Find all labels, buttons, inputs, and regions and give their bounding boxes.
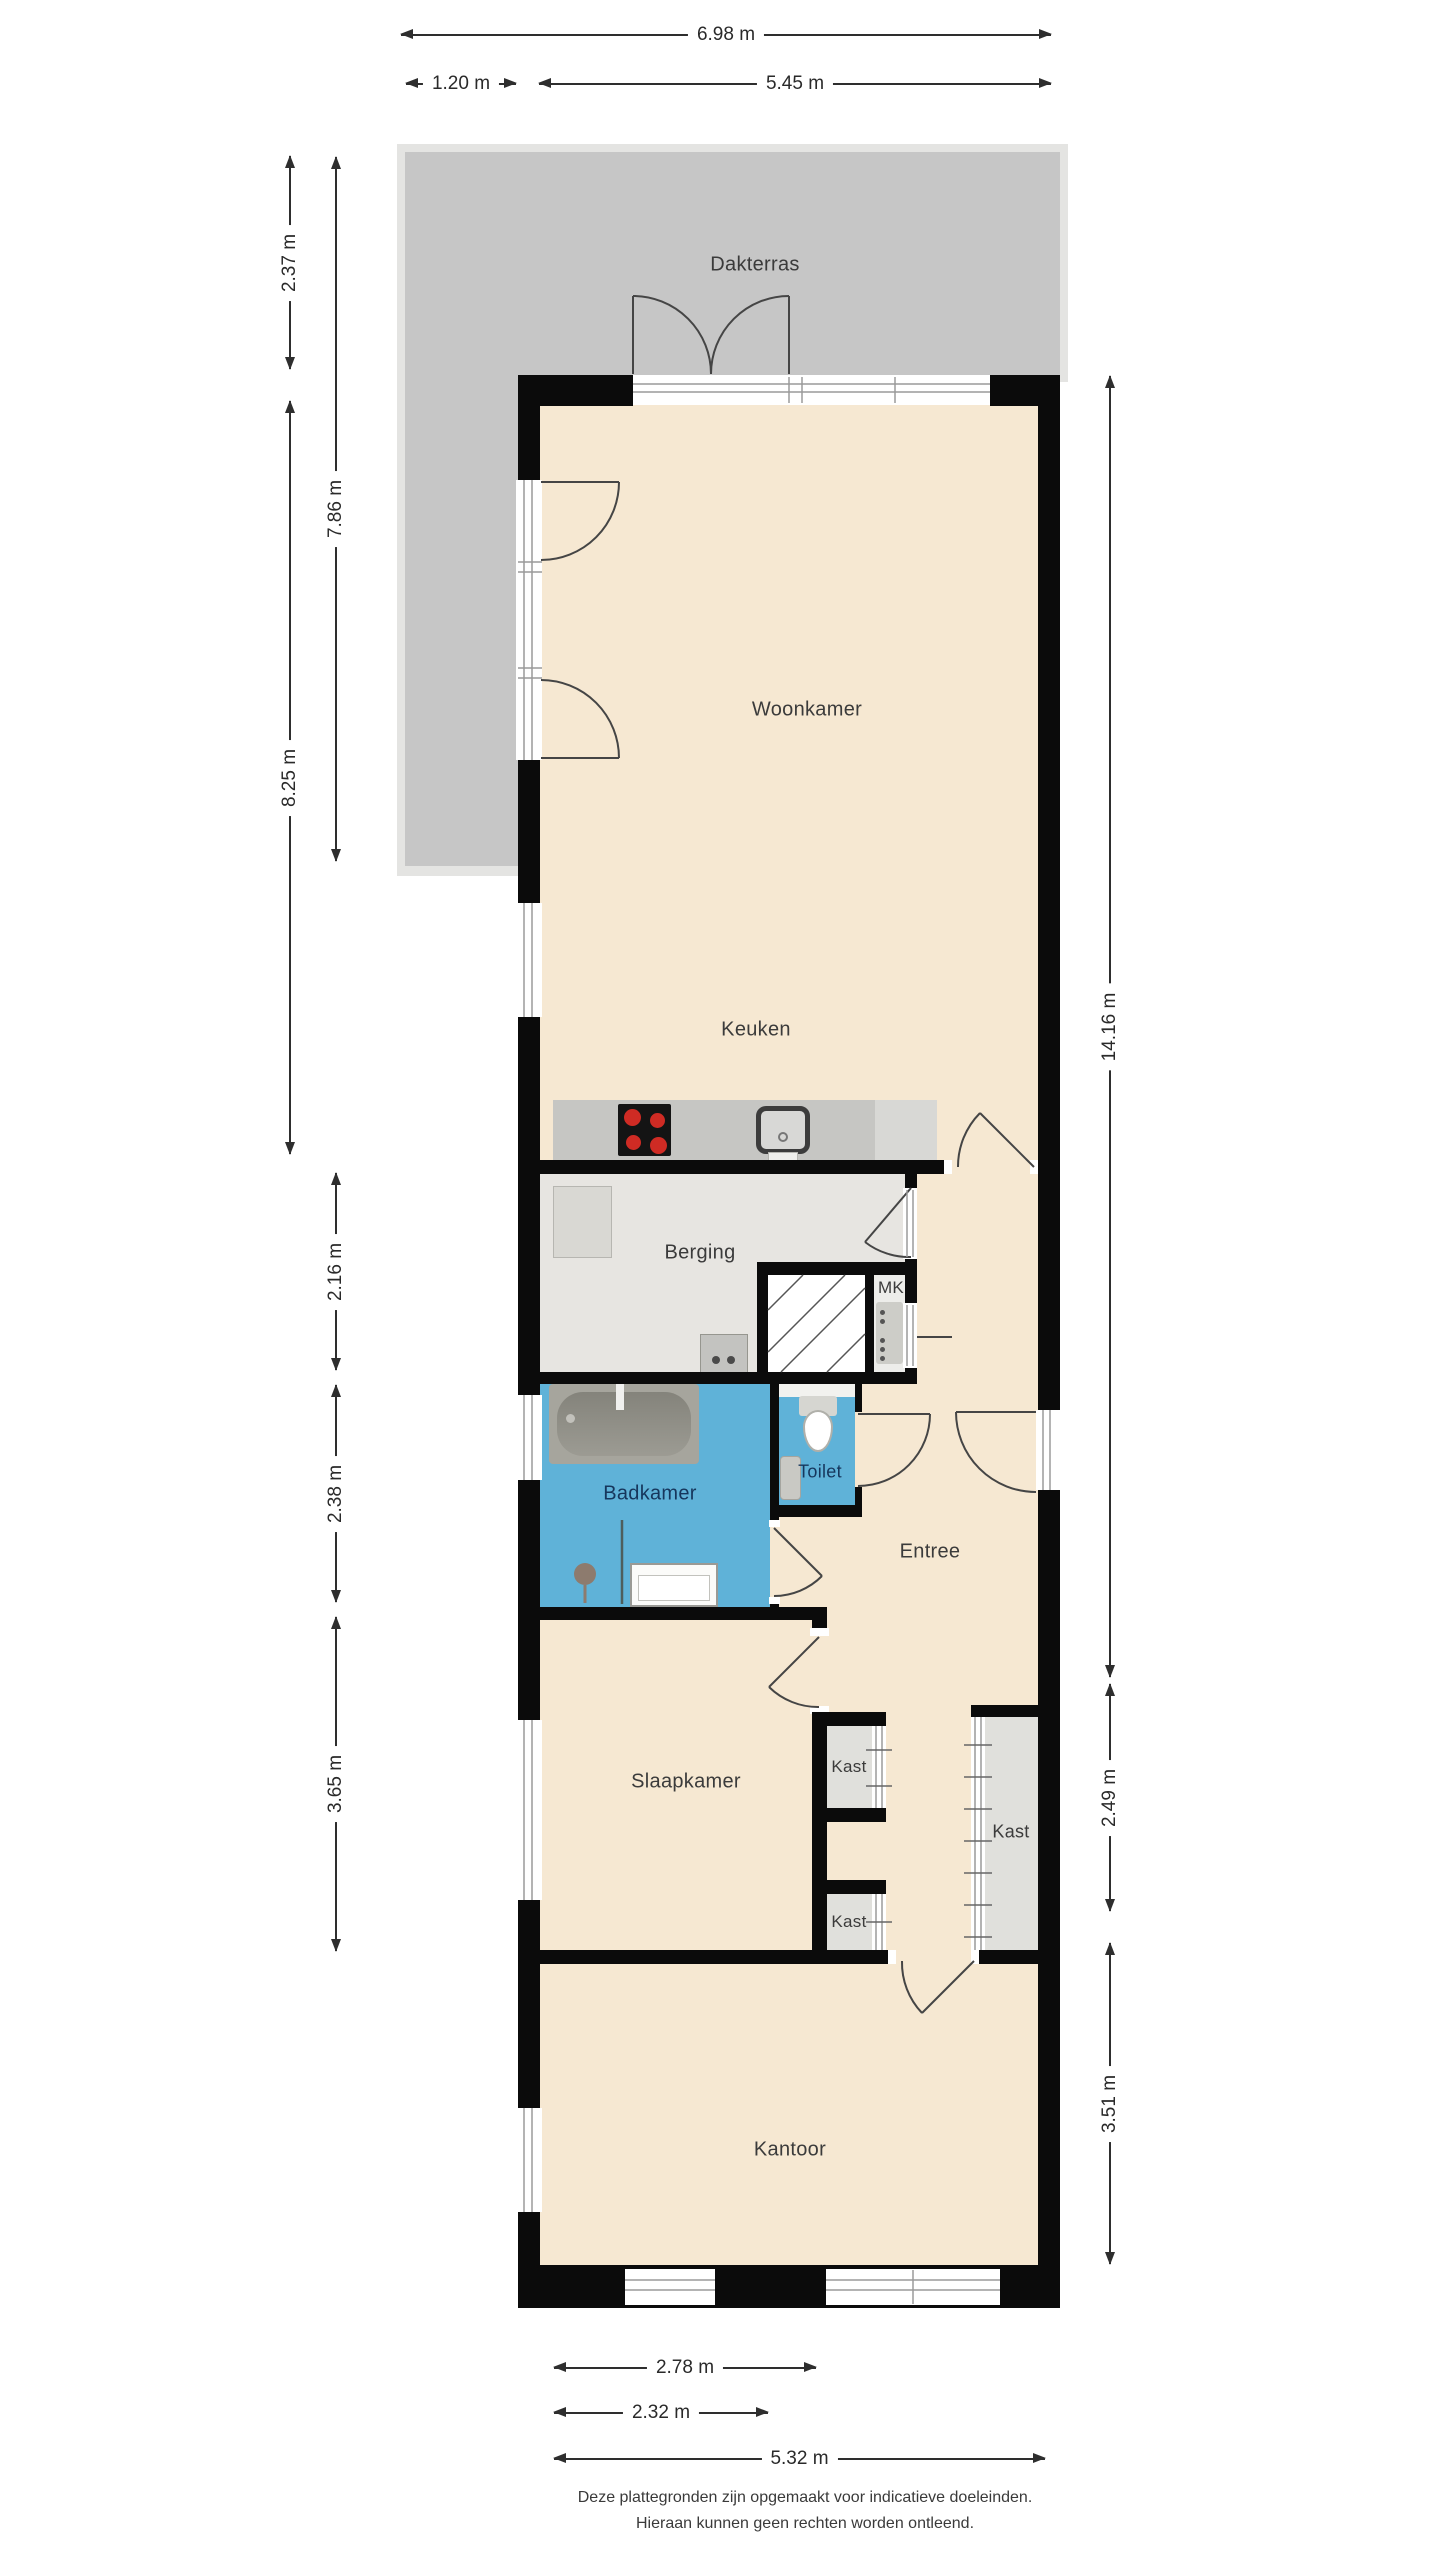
dimension-left-bedroom: 3.65 m <box>328 1616 344 1952</box>
dimension-bottom-bathroom: 2.32 m <box>553 2405 769 2421</box>
arrowhead-icon <box>553 2362 566 2372</box>
arrowhead-icon <box>504 78 517 88</box>
dimension-top-building: 5.45 m <box>538 76 1052 92</box>
shaft-hatch <box>768 1275 865 1372</box>
dimension-right-total: 14.16 m <box>1102 375 1118 1678</box>
dimension-value: 2.32 m <box>623 2402 699 2424</box>
keuken-door <box>958 1113 1034 1167</box>
label-slaapkamer: Slaapkamer <box>631 1771 741 1794</box>
arrowhead-icon <box>804 2362 817 2372</box>
berging-door <box>865 1188 911 1257</box>
label-mk: MK <box>878 1278 904 1298</box>
dimension-value: 7.86 m <box>325 471 347 547</box>
door-swing-arc <box>902 1961 922 2013</box>
dimension-right-closet: 2.49 m <box>1102 1683 1118 1912</box>
arrowhead-icon <box>1105 1683 1115 1696</box>
dimension-left-bathroom: 2.38 m <box>328 1384 344 1603</box>
dimension-value: 8.25 m <box>279 739 301 815</box>
door-swing-arc <box>956 1412 1036 1492</box>
label-kantoor: Kantoor <box>754 2139 826 2162</box>
kantoor-door <box>902 1961 974 2013</box>
label-woonkamer: Woonkamer <box>752 699 862 722</box>
disclaimer-line-2: Hieraan kunnen geen rechten worden ontle… <box>636 2515 974 2533</box>
dimension-right-office: 3.51 m <box>1102 1942 1118 2265</box>
arrowhead-icon <box>1033 2453 1046 2463</box>
dimension-top-terrace: 1.20 m <box>405 76 517 92</box>
door-swing-arc <box>858 1414 930 1486</box>
arrowhead-icon <box>1039 29 1052 39</box>
label-badkamer: Badkamer <box>603 1483 697 1506</box>
label-keuken: Keuken <box>721 1019 791 1042</box>
arrowhead-icon <box>331 1590 341 1603</box>
dimension-value: 3.51 m <box>1099 2065 1121 2141</box>
arrowhead-icon <box>1105 2252 1115 2265</box>
arrowhead-icon <box>1105 1665 1115 1678</box>
dimension-value: 14.16 m <box>1099 983 1121 1070</box>
dimension-left-storage: 2.16 m <box>328 1172 344 1371</box>
dimension-value: 1.20 m <box>423 73 499 95</box>
arrowhead-icon <box>756 2407 769 2417</box>
dimension-value: 2.49 m <box>1099 1759 1121 1835</box>
arrowhead-icon <box>1039 78 1052 88</box>
label-toilet: Toilet <box>798 1462 842 1483</box>
dimension-value: 2.16 m <box>325 1233 347 1309</box>
arrowhead-icon <box>285 357 295 370</box>
woonkamer-terrace-doors <box>541 482 619 758</box>
arrowhead-icon <box>331 1939 341 1952</box>
arrowhead-icon <box>553 2453 566 2463</box>
label-entree: Entree <box>900 1541 961 1564</box>
arrowhead-icon <box>538 78 551 88</box>
arrowhead-icon <box>331 156 341 169</box>
dimension-value: 2.78 m <box>647 2357 723 2379</box>
door-swing-arc <box>865 1242 911 1257</box>
dimension-left-living: 8.25 m <box>282 400 298 1155</box>
dimension-value: 5.32 m <box>761 2448 837 2470</box>
dimension-value: 6.98 m <box>688 24 764 46</box>
slaapkamer-door <box>769 1637 819 1707</box>
dimension-top-total: 6.98 m <box>400 27 1052 43</box>
dimension-value: 3.65 m <box>325 1746 347 1822</box>
arrowhead-icon <box>331 1358 341 1371</box>
arrowhead-icon <box>331 849 341 862</box>
toilet-door <box>858 1414 930 1486</box>
dimension-left-terrace: 2.37 m <box>282 155 298 370</box>
door-swing-arc <box>774 1576 822 1596</box>
badkamer-door <box>774 1528 822 1596</box>
arrowhead-icon <box>553 2407 566 2417</box>
dimension-left-terrace-total: 7.86 m <box>328 156 344 862</box>
door-swing-arc <box>958 1113 980 1167</box>
door-leaf <box>774 1528 822 1576</box>
door-leaf <box>769 1637 819 1687</box>
arrowhead-icon <box>331 1384 341 1397</box>
arrowhead-icon <box>285 1142 295 1155</box>
plan-linework <box>0 0 1440 2560</box>
terrace-double-door <box>633 296 789 374</box>
arrowhead-icon <box>285 155 295 168</box>
arrowhead-icon <box>331 1172 341 1185</box>
floorplan-canvas: Dakterras Woonkamer Keuken Berging MK Ba… <box>0 0 1440 2560</box>
door-leaf <box>980 1113 1034 1167</box>
door-swing-arc <box>541 680 619 758</box>
arrowhead-icon <box>285 400 295 413</box>
dimension-value: 2.38 m <box>325 1455 347 1531</box>
label-dakterras: Dakterras <box>710 254 799 277</box>
dimension-bottom-bedroom: 2.78 m <box>553 2360 817 2376</box>
closet-door-ticks <box>866 1745 992 1937</box>
disclaimer-line-1: Deze plattegronden zijn opgemaakt voor i… <box>578 2489 1033 2507</box>
door-leaf <box>922 1961 974 2013</box>
dimension-value: 5.45 m <box>757 73 833 95</box>
label-kast-hall-bottom: Kast <box>831 1912 866 1932</box>
arrowhead-icon <box>1105 1942 1115 1955</box>
front-door <box>956 1412 1036 1492</box>
dimension-value: 2.37 m <box>279 224 301 300</box>
label-kast-hall-top: Kast <box>831 1757 866 1777</box>
dimension-bottom-total: 5.32 m <box>553 2451 1046 2467</box>
door-leaf <box>865 1188 911 1242</box>
arrowhead-icon <box>1105 375 1115 388</box>
label-berging: Berging <box>664 1242 735 1265</box>
door-swing-arc <box>541 482 619 560</box>
door-swing-arc <box>633 296 711 374</box>
window-frame-lines <box>518 377 1050 2304</box>
arrowhead-icon <box>1105 1899 1115 1912</box>
arrowhead-icon <box>331 1616 341 1629</box>
door-swing-arc <box>711 296 789 374</box>
door-swing-arc <box>769 1687 819 1707</box>
arrowhead-icon <box>400 29 413 39</box>
label-kast-wardrobe: Kast <box>992 1822 1029 1843</box>
arrowhead-icon <box>405 78 418 88</box>
